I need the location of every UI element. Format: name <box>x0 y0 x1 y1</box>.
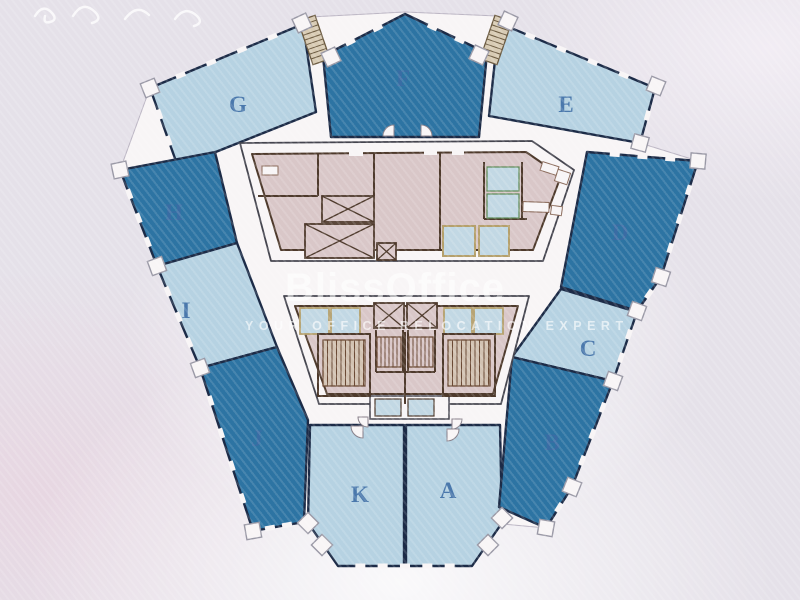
unit-K-label: K <box>351 482 369 507</box>
lobby-detail <box>409 337 433 367</box>
facade-pillar <box>690 153 706 169</box>
floorplan-svg: GFEHIJKADCB <box>0 0 800 600</box>
washroom-fixture <box>523 202 549 213</box>
window-tick <box>378 564 388 569</box>
window-tick <box>637 154 647 160</box>
lift-shaft <box>331 308 360 334</box>
facade-pillar <box>537 519 554 536</box>
unit-G-label: G <box>229 92 247 117</box>
facade-pillar <box>244 522 261 539</box>
door-opening <box>452 146 464 155</box>
unit-B-label: B <box>544 430 559 455</box>
window-tick <box>400 564 410 569</box>
toilet-stall <box>487 194 519 218</box>
unit-J-label: J <box>251 426 263 451</box>
lift-shaft <box>474 308 503 334</box>
window-tick <box>422 564 432 569</box>
door-opening <box>424 146 437 155</box>
unit-C-label: C <box>580 336 597 361</box>
window-tick <box>610 151 620 157</box>
window-tick <box>445 564 455 569</box>
lobby-detail <box>377 337 401 367</box>
scan-ornament <box>35 7 200 26</box>
staircase-right <box>448 340 490 386</box>
toilet-stall <box>487 167 519 191</box>
lift-shaft <box>444 308 472 334</box>
unit-E-label: E <box>558 92 573 117</box>
unit-A-label: A <box>440 478 457 503</box>
stub-room <box>375 399 401 416</box>
window-tick <box>355 564 365 569</box>
unit-I-label: I <box>182 298 191 323</box>
unit-H-label: H <box>165 200 183 225</box>
facade-pillar <box>631 134 649 152</box>
washroom-fixture <box>550 205 562 215</box>
facade-pillar <box>111 161 129 179</box>
window-tick <box>665 156 675 162</box>
washroom-fixture <box>262 166 278 175</box>
scanned-floorplan-page: GFEHIJKADCB BlissOffice YOUR OFFICE RELO… <box>0 0 800 600</box>
staircase-left <box>323 340 365 386</box>
lift-shaft <box>300 308 329 334</box>
unit-F-label: F <box>396 66 410 91</box>
unit-D-label: D <box>612 220 629 245</box>
unit-D-region <box>561 152 698 311</box>
stub-room <box>408 399 434 416</box>
door-opening <box>349 147 363 156</box>
lift-shaft <box>479 226 509 256</box>
lift-shaft <box>443 226 475 256</box>
